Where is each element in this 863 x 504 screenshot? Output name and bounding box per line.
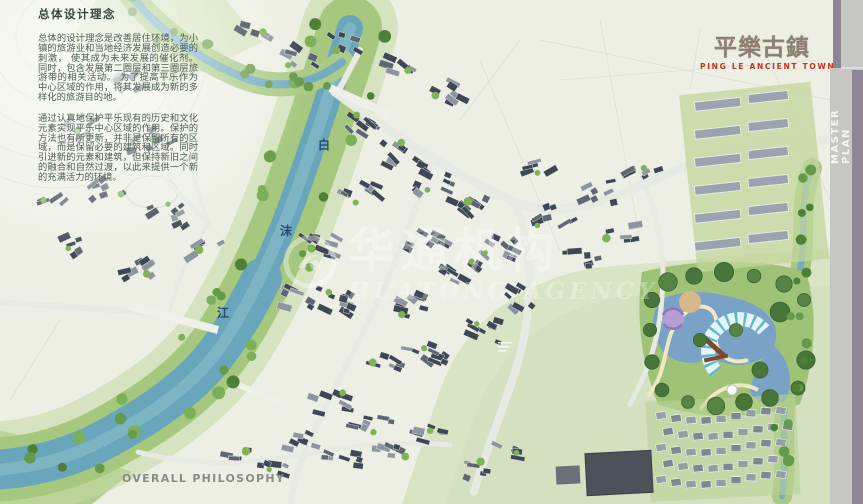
footer-label: OVERALL PHILOSOPHY	[122, 472, 285, 485]
sidebar-separator-line	[841, 67, 863, 69]
master-plan-label: MASTER PLAN	[830, 74, 852, 164]
river-label-jiang: 江	[217, 304, 229, 321]
masterplan-page: 总体设计理念 总体的设计理念是改善居住环境，为小镇的旅游业和当地经济发展创造必要…	[0, 0, 863, 504]
river-label-mo: 沫	[280, 222, 292, 239]
intro-paragraph-1: 总体的设计理念是改善居住环境，为小镇的旅游业和当地经济发展创造必要的刺激， 使其…	[38, 34, 198, 103]
master-plan-tab: MASTER PLAN	[829, 74, 852, 164]
project-brand: 平樂古鎮 PING LE ANCIENT TOWN	[700, 36, 824, 71]
sidebar-top-accent-bar	[833, 0, 841, 68]
brand-title-cn: 平樂古鎮	[700, 36, 824, 59]
intro-heading: 总体设计理念	[38, 6, 198, 22]
intro-block: 总体设计理念 总体的设计理念是改善居住环境，为小镇的旅游业和当地经济发展创造必要…	[38, 6, 198, 194]
brand-subtitle-en: PING LE ANCIENT TOWN	[700, 62, 824, 71]
intro-paragraph-2: 通过认真地保护平乐现有的历史和文化元素实现平乐中心区域的作用。保护的方法也有所更…	[38, 114, 198, 183]
sidebar-top-gray-block	[841, 0, 863, 68]
sidebar-right-accent-bar	[852, 70, 863, 504]
river-label-bai: 白	[318, 136, 330, 153]
